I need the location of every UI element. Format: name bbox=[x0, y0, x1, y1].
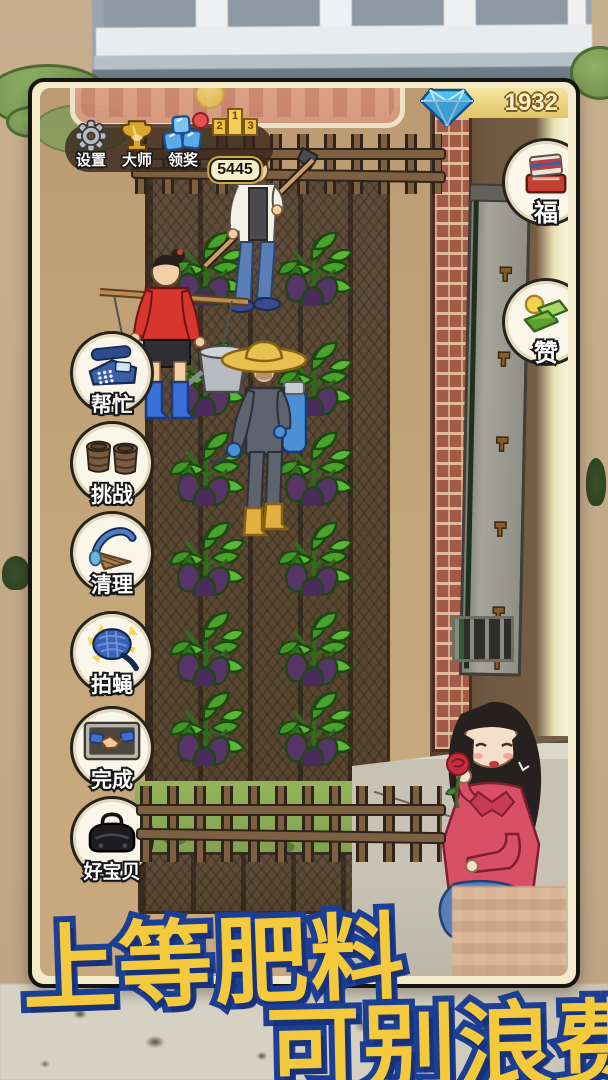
score-value: 5445 bbox=[209, 158, 261, 182]
fortune-label: 福 bbox=[492, 193, 568, 228]
game-frame: 1932 bbox=[28, 78, 580, 988]
faucet-icon bbox=[495, 435, 511, 453]
settings-label: 设置 bbox=[67, 149, 115, 170]
building-windows bbox=[104, 0, 586, 28]
help-label: 帮忙 bbox=[60, 389, 164, 419]
money-icon bbox=[519, 291, 568, 339]
finish-button[interactable]: 完成 bbox=[70, 706, 154, 790]
phone-icon bbox=[83, 342, 141, 390]
swat-flies-button[interactable]: 拍蝇 bbox=[70, 611, 154, 695]
eggplant-plant bbox=[158, 600, 254, 686]
podium-third: 3 bbox=[243, 118, 258, 136]
fly-swatter-icon bbox=[81, 620, 143, 672]
diamond-icon bbox=[420, 88, 474, 130]
eggplant-plant bbox=[158, 680, 254, 766]
game-screen: 1932 bbox=[40, 88, 568, 976]
clean-button[interactable]: 清理 bbox=[70, 511, 154, 595]
top-menu-bar: 设置 大师 bbox=[65, 124, 273, 172]
grass-tuft bbox=[586, 458, 606, 506]
handshake-icon bbox=[83, 719, 141, 763]
fortune-button[interactable]: 福 bbox=[502, 138, 568, 226]
master-label: 大师 bbox=[113, 149, 161, 170]
caption-line-2: 可别浪费 bbox=[265, 968, 608, 1080]
leaderboard-button[interactable]: 2 1 3 5445 bbox=[207, 124, 263, 172]
faucet-icon bbox=[493, 520, 509, 538]
challenge-label: 挑战 bbox=[60, 479, 164, 509]
eggplant-plant bbox=[266, 600, 362, 686]
help-button[interactable]: 帮忙 bbox=[70, 331, 154, 415]
censored-mosaic bbox=[452, 886, 566, 976]
swat-flies-label: 拍蝇 bbox=[60, 669, 164, 699]
challenge-button[interactable]: 挑战 bbox=[70, 421, 154, 505]
podium-first: 1 bbox=[227, 108, 243, 136]
master-button[interactable]: 大师 bbox=[113, 124, 161, 172]
broom-icon bbox=[83, 521, 141, 571]
eggplant-plant bbox=[266, 680, 362, 766]
praise-button[interactable]: 赞 bbox=[502, 278, 568, 366]
barrels-icon bbox=[83, 433, 141, 479]
settings-button[interactable]: 设置 bbox=[67, 124, 115, 172]
background-building bbox=[92, 0, 593, 88]
concrete-trough bbox=[459, 183, 531, 676]
bag-icon bbox=[82, 807, 142, 855]
screenshot-root: 1932 bbox=[0, 0, 608, 1080]
rewards-button[interactable]: 领奖 bbox=[159, 124, 207, 172]
podium-icon: 2 1 3 bbox=[212, 108, 258, 136]
fence-bottom bbox=[140, 786, 442, 862]
grass-tuft bbox=[2, 556, 30, 590]
farmer-sprayer-character bbox=[212, 332, 320, 537]
gem-count: 1932 bbox=[505, 89, 558, 116]
clean-label: 清理 bbox=[60, 569, 164, 599]
rewards-label: 领奖 bbox=[159, 149, 207, 170]
praise-label: 赞 bbox=[492, 333, 568, 368]
barred-window bbox=[452, 616, 514, 662]
podium-second: 2 bbox=[212, 118, 227, 136]
